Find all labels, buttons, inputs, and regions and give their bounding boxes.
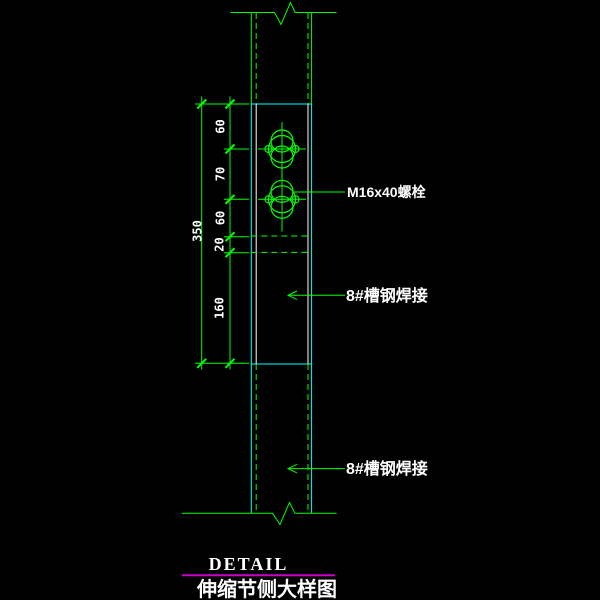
weld-leader-upper [288,291,345,300]
weld-label-upper: 8#槽钢焊接 [346,286,428,305]
dim-value-160: 160 [213,297,227,319]
dim-value-20: 20 [213,237,227,251]
connection-plate [251,104,311,513]
dim-value-60-bottom: 60 [214,211,228,225]
upper-channel [231,3,337,105]
hidden-channel-end [251,236,311,252]
detail-heading: DETAIL [209,554,289,574]
title-block: DETAIL 伸缩节侧大样图 [182,554,337,600]
cad-canvas: 60 70 60 20 160 350 M16x40螺栓 8#槽钢焊接 8#槽钢… [0,0,600,600]
dim-value-70: 70 [214,167,228,181]
cad-drawing-viewport[interactable]: 60 70 60 20 160 350 M16x40螺栓 8#槽钢焊接 8#槽钢… [0,0,600,600]
weld-label-lower: 8#槽钢焊接 [346,459,428,478]
dimension-texts: 60 70 60 20 160 350 [191,119,228,319]
bolt-symbol-lower [258,180,306,218]
break-line-bottom [182,503,337,525]
bolt-label: M16x40螺栓 [347,184,426,200]
weld-leader-lower [288,464,345,473]
drawing-title: 伸缩节侧大样图 [196,577,337,600]
bolt-symbol-upper [258,130,306,168]
lower-channel [182,364,337,525]
dim-value-350: 350 [191,220,205,242]
dim-value-60-top: 60 [214,119,228,133]
break-line-top [231,3,337,25]
